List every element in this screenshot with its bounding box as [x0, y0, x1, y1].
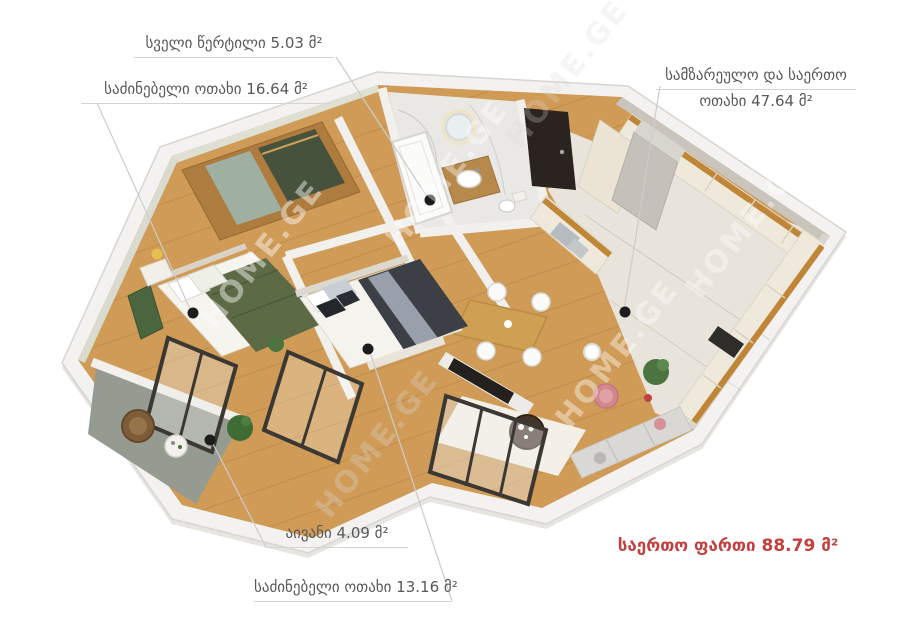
floor-plan-page: HOME.GE HOME.GE HOME.GE HOME.GE HOME.GE …: [0, 0, 900, 636]
marker-balcony: [205, 435, 216, 446]
label-bedroom-2: საძინებელი ოთახი 13.16 მ²: [254, 578, 452, 602]
label-kitchen-living-line1: სამზარეულო და საერთო: [656, 66, 856, 90]
label-total-area: საერთო ფართი 88.79 მ²: [608, 536, 848, 556]
label-kitchen-living-line2: ოთახი 47.64 მ²: [656, 90, 856, 112]
balcony-table: [165, 435, 187, 457]
toilet: [499, 200, 515, 212]
label-wet-point: სველი წერტილი 5.03 მ²: [134, 34, 334, 58]
label-balcony: აივანი 4.09 მ²: [266, 524, 408, 548]
label-kitchen-living: სამზარეულო და საერთო ოთახი 47.64 მ²: [656, 66, 856, 112]
marker-bedroom-2: [363, 344, 374, 355]
plant: [268, 336, 284, 352]
label-bedroom-1: საძინებელი ოთახი 16.64 მ²: [81, 80, 331, 104]
